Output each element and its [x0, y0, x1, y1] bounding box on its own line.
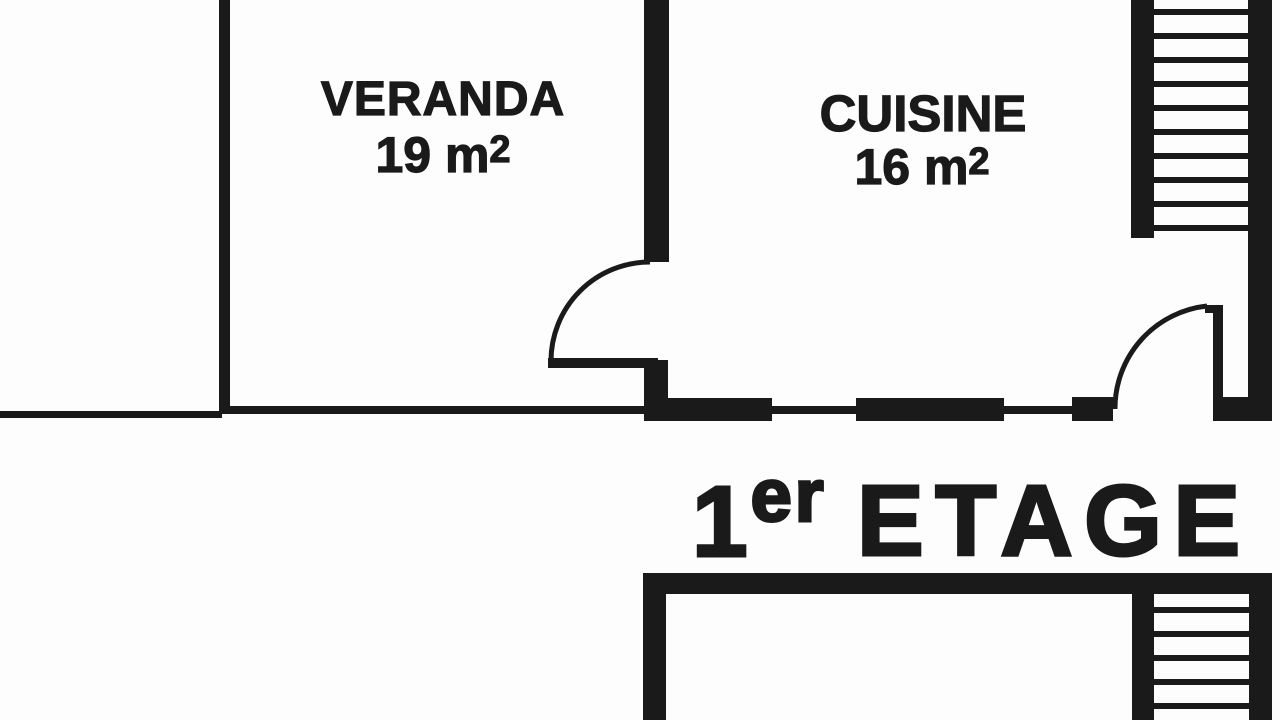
svg-text:CUISINE: CUISINE: [820, 85, 1027, 142]
svg-text:VERANDA: VERANDA: [321, 73, 565, 126]
svg-text:ETAGE: ETAGE: [857, 465, 1252, 577]
svg-text:1er: 1er: [692, 454, 827, 578]
